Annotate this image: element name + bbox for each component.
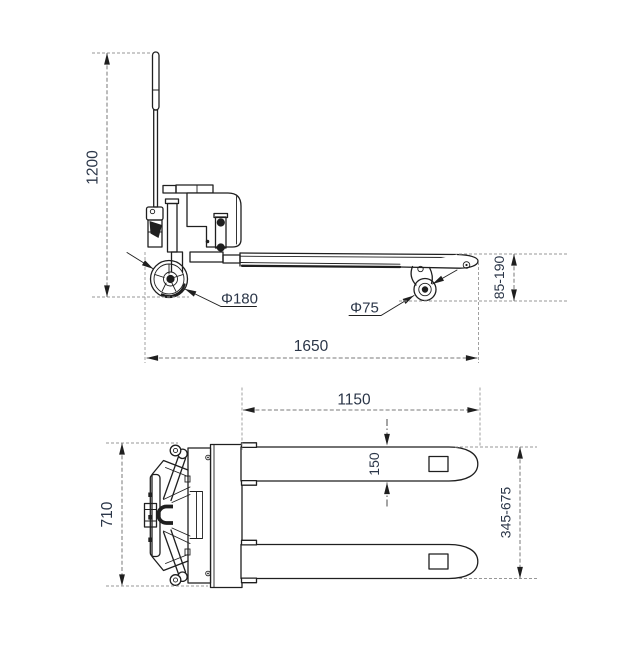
handle-knob-top [170,445,187,458]
fork-beam [240,253,478,285]
dim-label-fork-spread-range: 345-675 [498,487,514,539]
dim-fork-length: 1150 [242,388,480,451]
dim-label-fork-length: 1150 [337,392,371,409]
drawing-svg: 1200 1650 Φ180 Φ75 85-190 [0,0,618,664]
load-roller [414,279,436,301]
roller-linkage [411,267,432,286]
lift-piston-pin-bottom [217,243,225,251]
plan-view: 710 1150 150 345-675 [99,388,537,588]
fork-carriage [185,445,242,588]
pallet-truck-technical-drawing: 1200 1650 Φ180 Φ75 85-190 [0,0,618,664]
callout-steer-wheel-dia: Φ180 [127,253,258,308]
forks-plan [241,443,478,583]
callout-load-roller-dia: Φ75 [349,270,457,317]
wheel-hub [166,275,174,283]
dim-label-fork-width: 150 [366,452,382,476]
tiller-handle [153,52,160,207]
handle-knob-bottom [170,572,187,585]
dim-label-overall-width: 710 [99,501,116,527]
lift-piston-pin-top [217,218,225,226]
dim-label-load-roller-dia: Φ75 [350,300,379,317]
dim-label-steer-wheel-dia: Φ180 [221,291,258,308]
tiller-arms [164,445,188,585]
roller-hub [422,286,428,292]
steer-wheel [151,261,188,298]
dim-label-overall-length: 1650 [294,338,329,355]
dim-label-fork-height-range: 85-190 [491,255,507,299]
chassis-body [163,185,241,263]
steer-unit-cover [148,461,188,571]
release-lever [150,221,163,238]
dim-overall-length: 1650 [145,252,479,363]
dim-label-overall-height: 1200 [85,150,102,185]
side-view: 1200 1650 Φ180 Φ75 85-190 [85,52,568,363]
dim-fork-height-range: 85-190 [399,254,567,301]
